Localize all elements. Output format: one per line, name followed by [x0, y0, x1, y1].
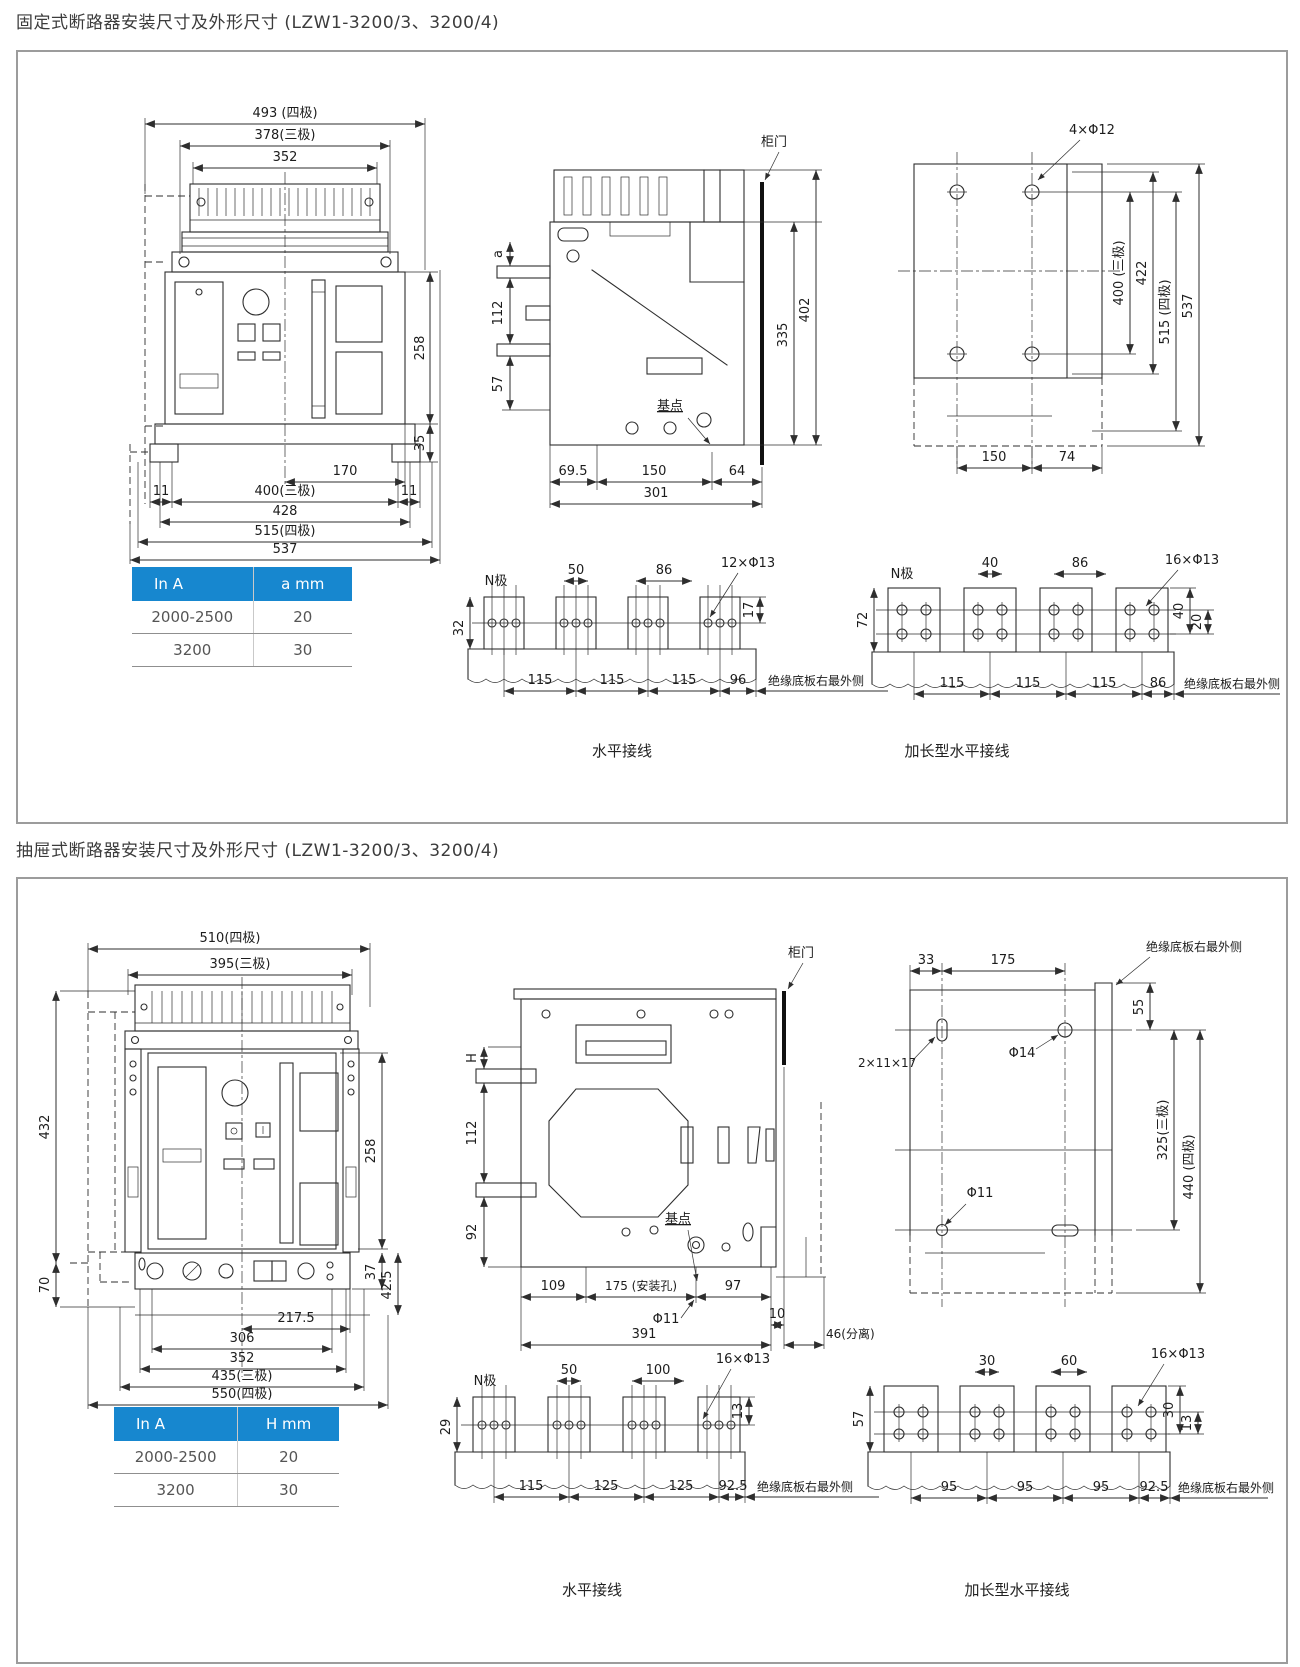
s2-mounting-holes-drawing: 绝缘底板右最外侧 33 175	[850, 935, 1250, 1325]
table-cell: 2000-2500	[114, 1441, 238, 1474]
hole-count-label: 16×Φ13	[1151, 1347, 1205, 1362]
hole-count-label: 16×Φ13	[716, 1352, 770, 1367]
dim-label: 13	[1180, 1415, 1195, 1432]
base-point-label: 基点	[657, 399, 683, 414]
dim-label: 428	[273, 504, 298, 519]
dim-label: 112	[491, 301, 506, 326]
hole-size-label: Φ14	[1009, 1046, 1036, 1061]
table-cell: 30	[253, 634, 352, 667]
dim-label: 258	[413, 336, 428, 361]
table-cell: 3200	[114, 1474, 238, 1507]
n-pole-label: N极	[474, 1374, 497, 1389]
s2-front-view-drawing: 510(四极) 395(三极) 432 70	[40, 917, 400, 1411]
dim-label: 115	[519, 1479, 544, 1494]
dim-label: 32	[452, 620, 467, 637]
dim-label: H	[465, 1053, 480, 1063]
dimension-lines: 33 175	[910, 953, 1065, 990]
dim-label: 74	[1059, 450, 1076, 465]
dim-label: 17	[742, 602, 757, 619]
table-header: In A	[132, 567, 253, 601]
busbar-blocks	[468, 585, 756, 683]
table-cell: 30	[238, 1474, 339, 1507]
section2-title: 抽屉式断路器安装尺寸及外形尺寸 (LZW1-3200/3、3200/4)	[16, 836, 499, 861]
diagram-caption: 水平接线	[492, 740, 752, 761]
dim-label: 115	[1092, 676, 1117, 691]
dim-label: 64	[729, 464, 746, 479]
dim-label: 92	[465, 1224, 480, 1241]
s2-rating-table: In A H mm 2000-2500 20 3200 30	[114, 1407, 339, 1507]
dim-label: 400(三极)	[255, 484, 316, 499]
s1-front-view-drawing: 493 (四极) 378(三极) 352	[60, 84, 460, 566]
dim-label: 432	[38, 1115, 53, 1140]
dim-label: 217.5	[277, 1311, 314, 1326]
cabinet-door-label: 柜门	[788, 946, 814, 961]
s1-horizontal-busbar-drawing: N极 50 86 12×Φ13 17 32 115 115 115 96	[456, 555, 896, 710]
dim-label: 86	[1072, 556, 1089, 571]
insulation-edge-label: 绝缘底板右最外侧	[1184, 676, 1280, 691]
dimension-lines: 115 115 115 96 绝缘底板右最外侧	[504, 649, 888, 697]
breaker-side-body	[497, 170, 744, 445]
dim-label: 422	[1135, 261, 1150, 286]
dim-label: 92.5	[719, 1479, 748, 1494]
insulation-edge-label: 绝缘底板右最外侧	[757, 1479, 853, 1494]
dim-label: 55	[1132, 999, 1147, 1016]
s1-rating-table: In A a mm 2000-2500 20 3200 30	[132, 567, 352, 667]
table-cell: 20	[238, 1441, 339, 1474]
hole-count-label: 12×Φ13	[721, 556, 775, 571]
table-header: In A	[114, 1407, 238, 1441]
dim-label: 10	[769, 1307, 786, 1322]
dim-label: 86	[656, 563, 673, 578]
dimension-lines: H 112 92 109 175 (安装孔) 97 Φ11 10	[465, 1047, 875, 1351]
dim-label: 150	[642, 464, 667, 479]
dim-label: 70	[38, 1277, 53, 1294]
table-cell: 3200	[132, 634, 253, 667]
table-cell: 2000-2500	[132, 601, 253, 634]
hole-count-label: 4×Φ12	[1069, 123, 1115, 138]
dim-label: 30	[1162, 1402, 1177, 1419]
dim-label: 50	[568, 563, 585, 578]
dimension-lines: 95 95 95 92.5 绝缘底板右最外侧	[911, 1452, 1274, 1504]
dim-label: 175	[991, 953, 1016, 968]
dim-label: 86	[1150, 676, 1167, 691]
cradle-body	[476, 989, 776, 1267]
dim-label: 69.5	[559, 464, 588, 479]
hole-count-label: 16×Φ13	[1165, 553, 1219, 568]
dim-label: 510(四极)	[200, 931, 261, 946]
insulation-edge-label: 绝缘底板右最外侧	[768, 673, 864, 688]
dim-label: 11	[401, 484, 418, 499]
dim-label: 50	[561, 1363, 578, 1378]
table-row: 2000-2500 20	[114, 1441, 339, 1474]
dim-label: 258	[364, 1139, 379, 1164]
dim-label: 30	[979, 1354, 996, 1369]
dimension-lines: 115 115 115 86 绝缘底板右最外侧	[914, 652, 1280, 700]
n-pole-label: N极	[485, 574, 508, 589]
base-point-label: 基点	[665, 1212, 691, 1227]
dimension-lines: a 112 57 69.5 150 64 301 335	[491, 170, 822, 508]
dim-label: 550(四极)	[212, 1387, 273, 1402]
dim-label: 96	[730, 673, 747, 688]
cabinet-door-label: 柜门	[761, 135, 787, 150]
breaker-body	[125, 977, 370, 1377]
table-header: a mm	[253, 567, 352, 601]
dim-label: 33	[918, 953, 935, 968]
busbar-blocks	[872, 588, 1176, 688]
s1-mounting-holes-drawing: 4×Φ12 400 (三极)	[852, 116, 1252, 481]
s2-extended-busbar-drawing: 30 60 16×Φ13 30 13 57 95 95 95 92.5	[848, 1334, 1272, 1569]
dim-label: 100	[646, 1363, 671, 1378]
dim-label: a	[491, 250, 506, 258]
busbar-blocks	[868, 1386, 1170, 1490]
dim-label: 20	[1190, 614, 1205, 631]
dim-label: 352	[230, 1351, 255, 1366]
dim-label: 402	[798, 298, 813, 323]
dim-label: 150	[982, 450, 1007, 465]
table-header: H mm	[238, 1407, 339, 1441]
table-row: 3200 30	[114, 1474, 339, 1507]
dim-label: 115	[940, 676, 965, 691]
dimension-lines: 258 37 42.5 217.5 306 352 435(三极)	[88, 1053, 398, 1409]
dimension-lines: 55 325(三极) 440 (四极)	[1116, 983, 1206, 1293]
phantom-outline	[776, 1102, 826, 1277]
s1-extended-busbar-drawing: N极 40 86 16×Φ13 40 20 72 115 115 115	[858, 552, 1282, 712]
dim-label: 60	[1061, 1354, 1078, 1369]
dim-label: 440 (四极)	[1182, 1134, 1197, 1199]
dim-label: 515(四极)	[255, 524, 316, 539]
dim-label: 493 (四极)	[252, 106, 317, 121]
dim-label: 352	[273, 150, 298, 165]
dim-label: 72	[856, 612, 871, 629]
dim-label: 306	[230, 1331, 255, 1346]
hole-size-label: Φ11	[967, 1186, 994, 1201]
slot-size-label: 2×11×17	[858, 1056, 916, 1070]
dim-label: 325(三极)	[1156, 1100, 1171, 1161]
hole-size-label: Φ11	[653, 1312, 680, 1327]
dim-label: 335	[776, 323, 791, 348]
section1-panel: 493 (四极) 378(三极) 352	[16, 50, 1288, 824]
dim-label: 175 (安装孔)	[605, 1278, 677, 1293]
dim-label: 537	[273, 542, 298, 557]
dim-label: 13	[731, 1403, 746, 1420]
dim-label: 40	[1172, 603, 1187, 620]
dim-label: 95	[941, 1480, 958, 1495]
dimension-lines: 115 125 125 92.5 绝缘底板右最外侧	[494, 1459, 879, 1503]
dim-label: 115	[600, 673, 625, 688]
n-pole-label: N极	[891, 567, 914, 582]
insulation-edge-label: 绝缘底板右最外侧	[1178, 1480, 1274, 1495]
dim-label: 125	[594, 1479, 619, 1494]
table-row: 3200 30	[132, 634, 352, 667]
dim-label: 35	[413, 435, 428, 452]
section1-title: 固定式断路器安装尺寸及外形尺寸 (LZW1-3200/3、3200/4)	[16, 8, 499, 33]
dim-label: 115	[672, 673, 697, 688]
dim-label: 301	[644, 486, 669, 501]
dim-label: 115	[528, 673, 553, 688]
dim-label: 435(三极)	[212, 1369, 273, 1384]
dim-label: 11	[153, 484, 170, 499]
dim-label: 95	[1093, 1480, 1110, 1495]
dim-label: 40	[982, 556, 999, 571]
table-row: 2000-2500 20	[132, 601, 352, 634]
dim-label: 57	[491, 376, 506, 393]
mounting-plate	[895, 963, 1132, 1307]
dim-label: 395(三极)	[210, 957, 271, 972]
section2-panel: 510(四极) 395(三极) 432 70	[16, 877, 1288, 1664]
dim-label: 95	[1017, 1480, 1034, 1495]
breaker-body	[150, 172, 420, 484]
dim-label: 515 (四极)	[1158, 279, 1173, 344]
dim-label: 109	[541, 1279, 566, 1294]
mounting-plate	[898, 152, 1120, 464]
dim-label: 92.5	[1140, 1480, 1169, 1495]
busbar-blocks	[455, 1385, 748, 1489]
datasheet-page: 固定式断路器安装尺寸及外形尺寸 (LZW1-3200/3、3200/4) 493…	[0, 0, 1300, 1667]
dim-label: 112	[465, 1121, 480, 1146]
diagram-caption: 加长型水平接线	[827, 740, 1087, 761]
dim-label: 57	[852, 1411, 867, 1428]
diagram-caption: 水平接线	[462, 1579, 722, 1600]
dim-label: 400 (三极)	[1112, 240, 1127, 305]
diagram-caption: 加长型水平接线	[887, 1579, 1147, 1600]
dim-label: 170	[333, 464, 358, 479]
insulation-edge-label: 绝缘底板右最外侧	[1146, 939, 1242, 954]
s1-side-view-drawing: 柜门 基点 a	[442, 130, 842, 512]
table-cell: 20	[253, 601, 352, 634]
dim-label: 29	[439, 1419, 454, 1436]
dim-label: 42.5	[380, 1271, 395, 1300]
dim-label: 125	[669, 1479, 694, 1494]
dim-label: 378(三极)	[255, 128, 316, 143]
dim-label: 37	[364, 1264, 379, 1281]
dim-label: 97	[725, 1279, 742, 1294]
dim-label: 115	[1016, 676, 1041, 691]
s2-horizontal-busbar-drawing: N极 50 100 16×Φ13 13 29 115 125 125 92.5	[443, 1337, 883, 1567]
dimension-lines: 400 (三极) 422 515 (四极) 537 150 74	[957, 164, 1205, 474]
dim-label: 537	[1181, 294, 1196, 319]
